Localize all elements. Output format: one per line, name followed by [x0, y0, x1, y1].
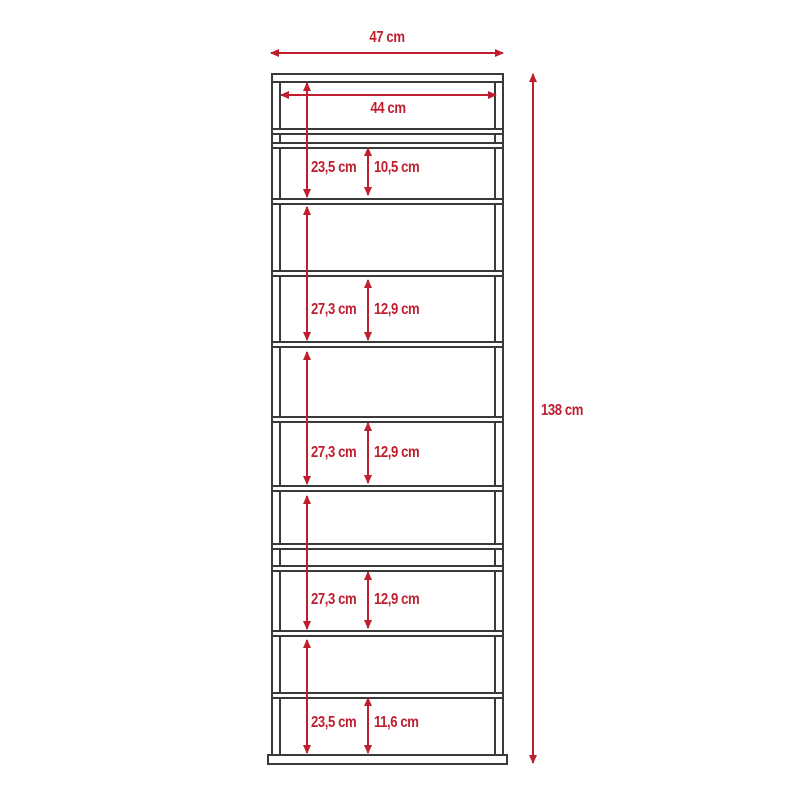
outer-width-dimension-line: [271, 52, 503, 54]
height-label: 138 cm: [541, 402, 583, 420]
compartment-outer-dimension-line: [306, 83, 308, 197]
compartment-inner-label: 12,9 cm: [374, 444, 419, 462]
compartment-inner-label: 12,9 cm: [374, 301, 419, 319]
shelf-line: [273, 198, 502, 205]
shelf-line: [273, 630, 502, 637]
compartment-inner-label: 12,9 cm: [374, 591, 419, 609]
compartment-inner-dimension-line: [367, 698, 369, 753]
compartment-inner-dimension-line: [367, 572, 369, 628]
inner-width-dimension-line: [281, 94, 496, 96]
furniture-dimension-diagram: 47 cm 44 cm 138 cm 23,5 cm 10,5 cm 27,3 …: [0, 0, 800, 800]
compartment-inner-dimension-line: [367, 423, 369, 483]
compartment-outer-dimension-line: [306, 640, 308, 753]
compartment-outer-dimension-line: [306, 207, 308, 340]
compartment-outer-label: 23,5 cm: [311, 714, 356, 732]
shelf-line: [273, 341, 502, 348]
compartment-inner-dimension-line: [367, 148, 369, 195]
shelf-line: [273, 485, 502, 492]
compartment-outer-label: 23,5 cm: [311, 159, 356, 177]
compartment-outer-dimension-line: [306, 496, 308, 629]
outer-width-label: 47 cm: [346, 29, 428, 47]
compartment-outer-label: 27,3 cm: [311, 444, 356, 462]
compartment-outer-dimension-line: [306, 352, 308, 484]
cabinet-base: [267, 754, 508, 765]
compartment-inner-label: 10,5 cm: [374, 159, 419, 177]
compartment-outer-label: 27,3 cm: [311, 301, 356, 319]
compartment-inner-label: 11,6 cm: [374, 714, 419, 732]
height-dimension-line: [532, 74, 534, 763]
inner-width-label: 44 cm: [347, 100, 429, 118]
compartment-outer-label: 27,3 cm: [311, 591, 356, 609]
compartment-inner-dimension-line: [367, 280, 369, 340]
